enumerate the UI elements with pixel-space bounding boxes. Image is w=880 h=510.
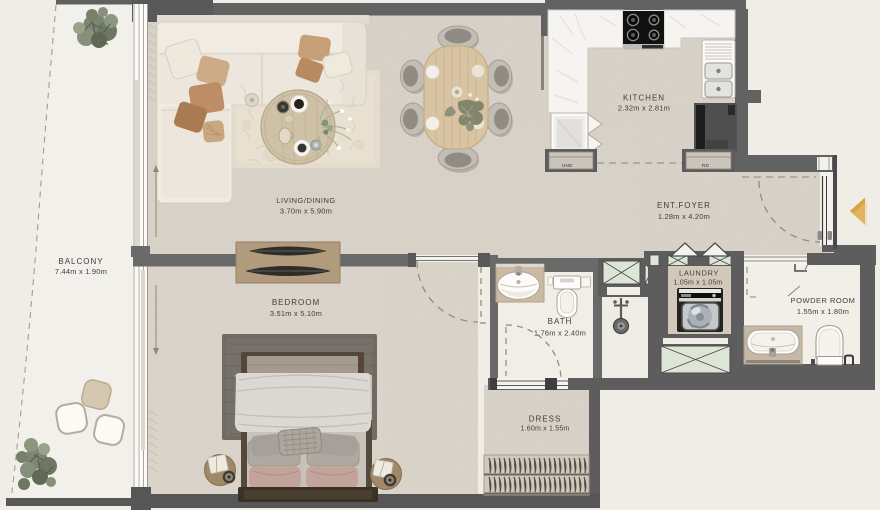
svg-text:3.51m x 5.10m: 3.51m x 5.10m (270, 309, 322, 318)
svg-text:POWDER ROOM: POWDER ROOM (791, 296, 856, 305)
svg-text:BEDROOM: BEDROOM (272, 298, 320, 307)
svg-text:1.55m x 1.80m: 1.55m x 1.80m (797, 307, 849, 316)
svg-text:DRESS: DRESS (529, 415, 562, 424)
svg-text:BATH: BATH (548, 317, 573, 326)
svg-text:3.70m x 5.90m: 3.70m x 5.90m (280, 207, 332, 216)
svg-text:LIVING/DINING: LIVING/DINING (276, 196, 335, 205)
svg-text:1.76m x 2.40m: 1.76m x 2.40m (534, 329, 586, 338)
svg-text:ENT.FOYER: ENT.FOYER (657, 201, 711, 210)
svg-text:7.44m x 1.90m: 7.44m x 1.90m (55, 267, 107, 276)
svg-text:RD: RD (702, 163, 710, 168)
svg-text:KITCHEN: KITCHEN (623, 94, 665, 103)
svg-text:1.60m x 1.55m: 1.60m x 1.55m (521, 426, 570, 433)
svg-text:2.32m x 2.81m: 2.32m x 2.81m (618, 104, 670, 113)
svg-text:BALCONY: BALCONY (58, 257, 103, 266)
svg-text:1.05m x 1.05m: 1.05m x 1.05m (674, 280, 723, 287)
svg-text:UND: UND (562, 163, 573, 168)
svg-text:1.28m x 4.20m: 1.28m x 4.20m (658, 212, 710, 221)
svg-text:LAUNDRY: LAUNDRY (679, 269, 719, 278)
